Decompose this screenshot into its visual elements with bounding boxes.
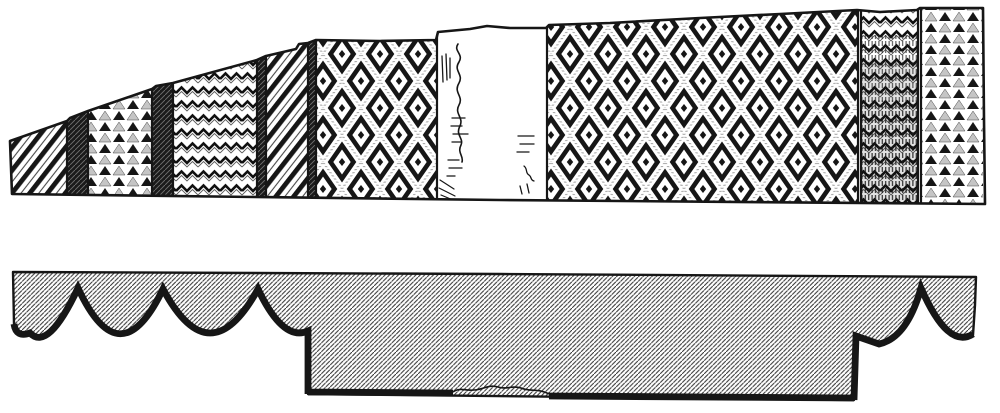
engraving-figure — [0, 0, 1000, 413]
divider-band-4 — [308, 0, 316, 212]
panel-diagonal-stripes-left — [10, 0, 67, 212]
panel-triangles-left — [88, 0, 152, 212]
divider-band-1 — [67, 0, 88, 212]
panel-triangles-right — [921, 0, 983, 212]
panel-zigzag-right-tone — [861, 60, 918, 212]
panel-diagonal-stripes-mid — [266, 0, 308, 212]
engraving-svg — [0, 0, 1000, 413]
panel-diamonds-left — [316, 0, 437, 212]
divider-band-2 — [152, 0, 173, 212]
panel-diamonds-right — [547, 0, 858, 212]
section-profile-body — [13, 272, 976, 400]
elevation-band — [10, 0, 985, 212]
panel-zigzag-left — [173, 0, 257, 212]
section-profile — [13, 272, 976, 400]
divider-band-3 — [257, 0, 266, 212]
